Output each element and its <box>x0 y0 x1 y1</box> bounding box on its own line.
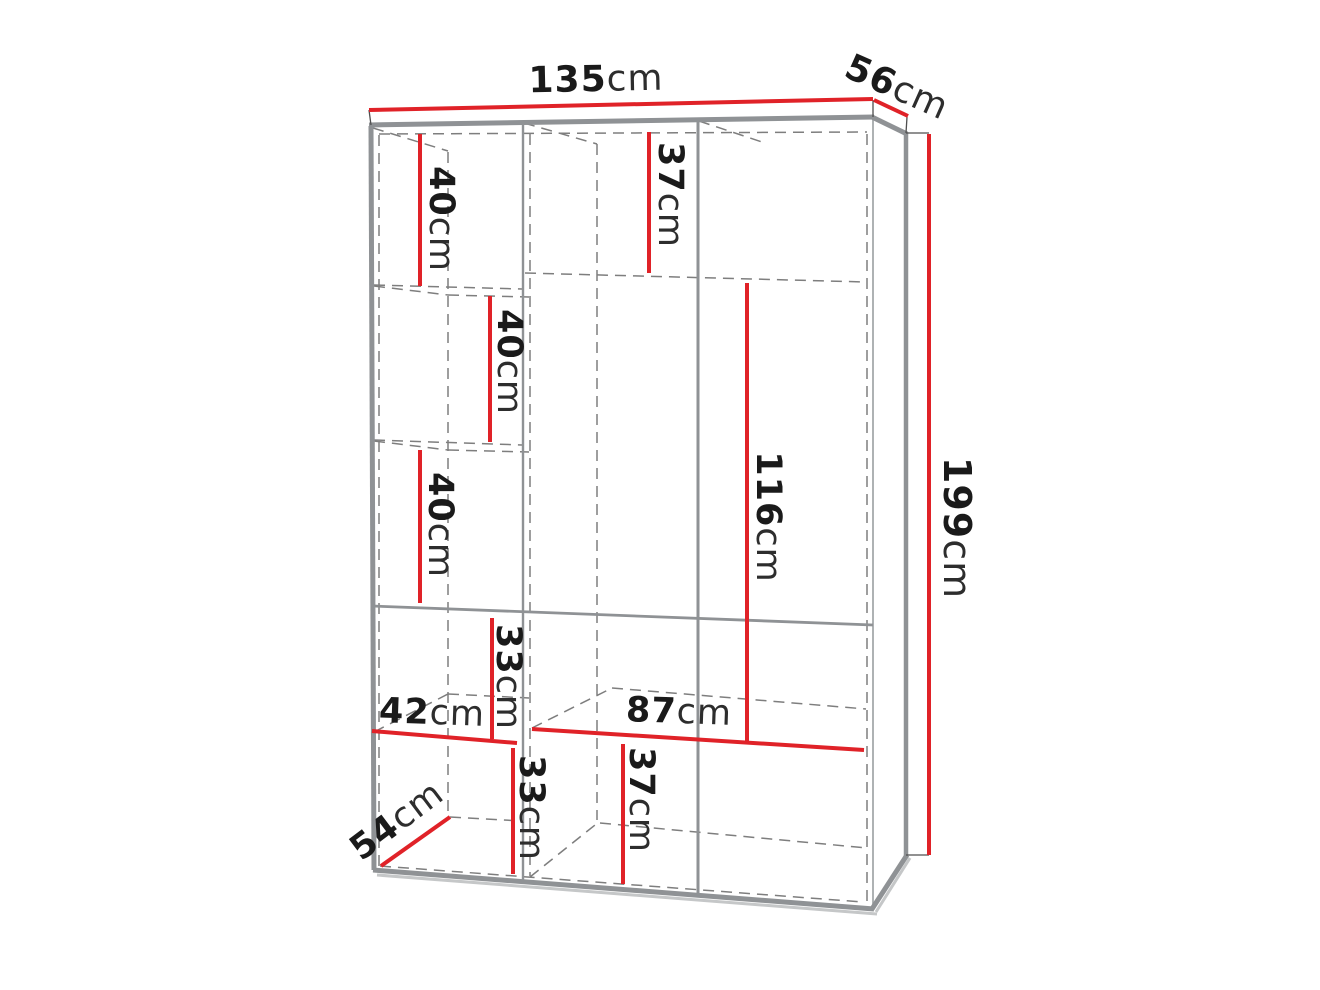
dim-label-left-shelf-top: 40cm <box>421 166 461 272</box>
dim-label-bottom-mid-compartment: 37cm <box>621 747 661 853</box>
frame-top-edge <box>369 117 874 125</box>
hidden-depth-top-left <box>373 128 448 151</box>
dim-unit: cm <box>935 539 979 599</box>
dim-value: 87 <box>625 690 677 732</box>
shelf2-back-edge <box>448 450 529 452</box>
dimension-labels: 135cm 56cm 199cm 40cm 40cm 40cm 37cm 116… <box>343 46 979 869</box>
dim-unit: cm <box>650 193 690 248</box>
dim-unit: cm <box>420 523 460 578</box>
wardrobe-dimension-diagram: 135cm 56cm 199cm 40cm 40cm 40cm 37cm 116… <box>0 0 1320 990</box>
dim-value: 40 <box>489 309 529 360</box>
dim-label-hanging-space: 116cm <box>748 451 788 582</box>
dim-unit: cm <box>429 693 486 735</box>
dim-label-overall-height: 199cm <box>935 457 979 599</box>
dim-label-left-shelf-lower: 40cm <box>420 472 460 578</box>
frame-left-edge <box>371 126 374 870</box>
divider-horizontal-mid <box>372 606 873 625</box>
dim-value: 37 <box>650 142 690 193</box>
dim-unit: cm <box>748 527 788 582</box>
frame-top-right-edge <box>872 117 907 134</box>
frame-bottom-right-edge <box>872 855 907 909</box>
dim-label-mid-left-compartment: 33cm <box>488 624 528 730</box>
dim-unit: cm <box>421 217 461 272</box>
dim-value: 33 <box>488 624 528 675</box>
top-compartment-bottom-edge <box>525 273 866 282</box>
dim-label-bottom-left-compartment: 33cm <box>511 755 551 861</box>
dim-unit: cm <box>511 806 551 861</box>
dim-unit: cm <box>676 692 733 734</box>
dim-unit: cm <box>489 360 529 415</box>
dim-label-left-section-width: 42cm <box>378 691 485 735</box>
dim-label-right-section-width: 87cm <box>625 690 732 734</box>
dim-value: 135 <box>528 58 607 101</box>
dim-label-overall-width: 135cm <box>528 57 664 101</box>
diagram-svg: 135cm 56cm 199cm 40cm 40cm 40cm 37cm 116… <box>0 0 1320 990</box>
tick-back-top <box>906 117 907 133</box>
dim-value: 199 <box>935 457 979 539</box>
dim-unit: cm <box>621 798 661 853</box>
dim-value: 42 <box>378 691 430 733</box>
dim-unit: cm <box>606 57 664 99</box>
dim-line-overall-width <box>369 99 873 110</box>
dim-value: 116 <box>748 451 788 527</box>
dim-value: 33 <box>511 755 551 806</box>
hidden-edge-top-back <box>379 132 867 134</box>
bottom-right-shadow <box>876 858 910 912</box>
dim-unit: cm <box>488 675 528 730</box>
dim-value: 40 <box>420 472 460 523</box>
dim-label-top-compartment: 37cm <box>650 142 690 248</box>
bottom-shadow <box>377 875 877 914</box>
dim-value: 37 <box>621 747 661 798</box>
hidden-depth-top-right <box>699 121 762 142</box>
dim-value: 40 <box>421 166 461 217</box>
dim-label-left-shelf-middle: 40cm <box>489 309 529 415</box>
shelf87-depth-edge <box>532 688 612 728</box>
